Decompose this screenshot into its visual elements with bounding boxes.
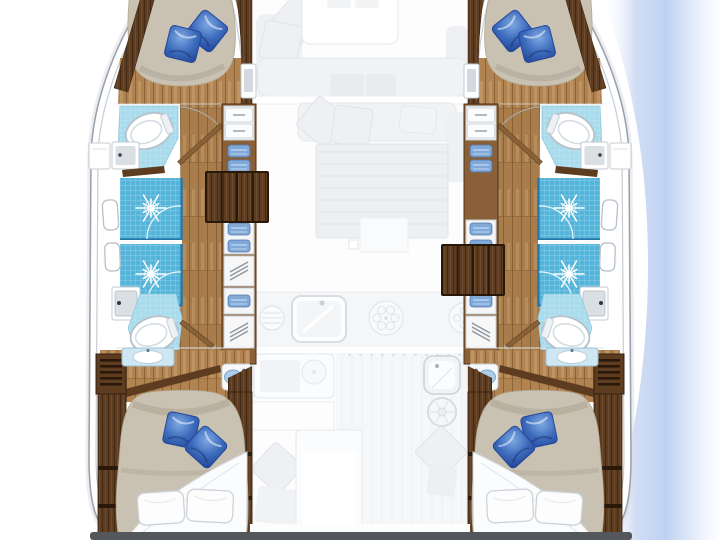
port-hull [89,0,256,538]
salon [295,95,468,252]
faucet-icon [320,301,325,306]
stern-beam [90,532,632,540]
catamaran-layout-plan [0,0,720,540]
helm-seat [426,464,457,497]
stern-deck-gap [250,524,470,533]
companionway-steps-port [205,171,269,223]
galley [250,292,479,354]
stove-burner [369,301,403,335]
helm-wheel-icon [428,398,456,426]
faucet-icon [435,364,439,368]
floor-plan-canvas [0,0,720,540]
companionway-steps-starboard [441,244,505,296]
